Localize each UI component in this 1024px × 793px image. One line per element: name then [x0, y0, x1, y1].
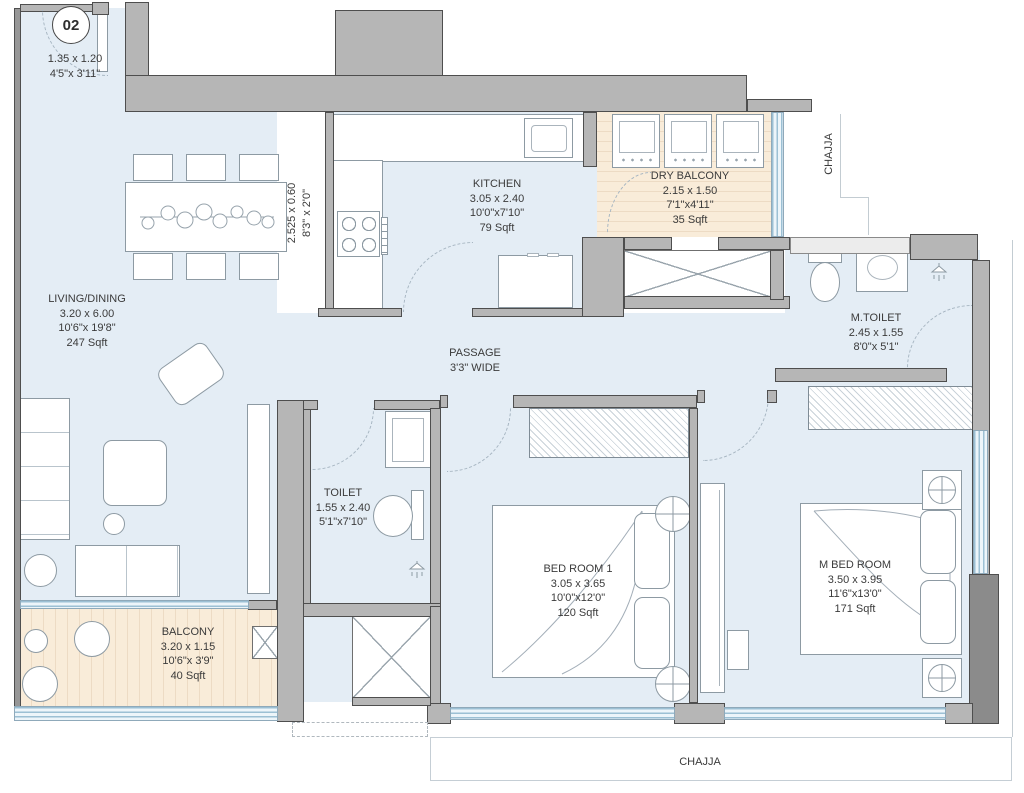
chajja-outline	[840, 114, 841, 198]
washer-unit	[716, 114, 764, 168]
room-name: M.TOILET	[806, 311, 946, 326]
kitchen-label: KITCHEN 3.05 x 2.40 10'0"x7'10" 79 Sqft	[427, 177, 567, 235]
room-dim-ft: 11'6"x13'0"	[785, 587, 925, 602]
wall	[689, 408, 698, 703]
balcony-chair	[22, 666, 58, 702]
pillow	[920, 580, 956, 644]
room-dim-ft: 7'1"x4'11"	[620, 198, 760, 213]
toilet-niche-floor	[303, 612, 352, 702]
balcony-chair	[74, 621, 110, 657]
dining-chair	[239, 253, 279, 280]
room-dim-ft: 10'6"x 19'8"	[17, 321, 157, 336]
wall	[472, 308, 597, 317]
vanity-cabinet	[385, 411, 431, 468]
room-dim-ft: 10'6"x 3'9"	[118, 654, 258, 669]
wall	[945, 703, 973, 724]
chajja-outline	[868, 197, 869, 235]
room-dim-m: 3.20 x 1.15	[118, 640, 258, 655]
room-dim-ft: 10'0"x12'0"	[508, 591, 648, 606]
living-label: LIVING/DINING 3.20 x 6.00 10'6"x 19'8" 2…	[17, 292, 157, 350]
room-name: M BED ROOM	[785, 558, 925, 573]
wall	[318, 308, 402, 317]
wall	[248, 600, 277, 610]
tv-unit	[247, 404, 270, 594]
shower-icon	[928, 262, 950, 286]
mtoilet-label: M.TOILET 2.45 x 1.55 8'0"x 5'1"	[806, 311, 946, 355]
wall	[335, 10, 443, 76]
side-table	[24, 554, 57, 587]
unit-number: 02	[63, 17, 80, 34]
dresser	[700, 483, 725, 693]
chajja-outline	[840, 197, 869, 198]
room-name: LIVING/DINING	[17, 292, 157, 307]
wall	[277, 400, 304, 722]
chajja-right-label: CHAJJA	[822, 124, 836, 184]
balcony-label: BALCONY 3.20 x 1.15 10'6"x 3'9" 40 Sqft	[118, 625, 258, 683]
window	[724, 707, 946, 720]
wall	[513, 395, 697, 408]
entry-dim-ft: 4'5"x 3'11"	[25, 67, 125, 82]
wall	[125, 75, 747, 112]
wardrobe	[529, 408, 689, 458]
wall	[440, 395, 448, 408]
dry-balcony-label: DRY BALCONY 2.15 x 1.50 7'1"x4'11" 35 Sq…	[620, 169, 760, 227]
wall	[674, 703, 725, 724]
wc-icon	[810, 262, 840, 302]
room-area: 35 Sqft	[620, 213, 760, 228]
wall	[583, 112, 597, 167]
room-name: KITCHEN	[427, 177, 567, 192]
mtoilet-ledge	[790, 237, 910, 254]
wall	[910, 234, 978, 260]
room-area: 171 Sqft	[785, 602, 925, 617]
wardrobe	[808, 386, 980, 430]
toilet-label: TOILET 1.55 x 2.40 5'1"x7'10"	[283, 486, 403, 530]
balcony-railing	[14, 706, 278, 721]
coffee-table	[103, 440, 167, 506]
room-dim-m: 3.05 x 2.40	[427, 192, 567, 207]
room-dim-ft: 10'0"x7'10"	[427, 206, 567, 221]
mbedroom-label: M BED ROOM 3.50 x 3.95 11'6"x13'0" 171 S…	[785, 558, 925, 616]
kitchen-sink-icon	[524, 118, 573, 158]
dashed-threshold	[292, 722, 428, 737]
window	[771, 112, 784, 237]
dining-chair	[186, 253, 226, 280]
wall	[718, 237, 790, 250]
chajja-outline	[1012, 240, 1013, 737]
dining-chair	[239, 154, 279, 181]
platform-dims-label: 2.525 x 0.60 8'3" x 2'0"	[285, 167, 315, 259]
room-area: 79 Sqft	[427, 221, 567, 236]
room-dim-ft: 8'0"x 5'1"	[806, 340, 946, 355]
wall	[352, 697, 431, 706]
window	[973, 430, 988, 574]
passage-label: PASSAGE 3'3" WIDE	[415, 346, 535, 375]
room-area: 120 Sqft	[508, 606, 648, 621]
duct-shaft	[352, 616, 431, 699]
washer-unit	[664, 114, 712, 168]
sofa	[18, 398, 70, 540]
island-unit	[498, 255, 573, 308]
chajja-bottom-label: CHAJJA	[650, 755, 750, 770]
bedroom1-label: BED ROOM 1 3.05 x 3.65 10'0"x12'0" 120 S…	[508, 562, 648, 620]
window	[450, 707, 675, 720]
room-dim-m: 3.50 x 3.95	[785, 573, 925, 588]
room-area: 247 Sqft	[17, 336, 157, 351]
wall	[325, 112, 334, 315]
wall	[624, 296, 790, 309]
wall	[747, 99, 812, 112]
balcony-table	[24, 629, 48, 653]
bedside-table	[655, 666, 691, 702]
stove-knobs	[381, 217, 388, 255]
room-dim-m: 2.45 x 1.55	[806, 326, 946, 341]
bench	[727, 630, 749, 670]
dining-chair	[186, 154, 226, 181]
unit-number-badge: 02	[52, 6, 90, 44]
room-dim-m: 1.55 x 2.40	[283, 501, 403, 516]
dining-chair	[133, 253, 173, 280]
sofa	[75, 545, 180, 597]
platform-dim-m: 2.525 x 0.60	[285, 167, 300, 259]
room-name: TOILET	[283, 486, 403, 501]
room-dim-m: 3.05 x 3.65	[508, 577, 648, 592]
side-table	[922, 470, 962, 510]
wall	[427, 703, 451, 724]
wall	[582, 237, 624, 317]
bedside-table	[655, 496, 691, 532]
room-dim-m: 2.15 x 1.50	[620, 184, 760, 199]
room-name: PASSAGE	[415, 346, 535, 361]
wall	[624, 237, 672, 250]
side-table	[922, 658, 962, 698]
room-name: BED ROOM 1	[508, 562, 648, 577]
wall	[969, 574, 999, 724]
wall	[300, 603, 441, 617]
chandelier-icon	[140, 204, 274, 230]
room-name: DRY BALCONY	[620, 169, 760, 184]
room-name: BALCONY	[118, 625, 258, 640]
washer-unit	[612, 114, 660, 168]
wall	[775, 368, 947, 382]
duct-shaft	[624, 250, 772, 298]
room-area: 40 Sqft	[118, 669, 258, 684]
floor-plan: 02 1.35 x 1.20 4'5"x 3'11" LIVING/DINING…	[0, 0, 1024, 793]
stove-icon	[337, 211, 380, 257]
entry-dim-m: 1.35 x 1.20	[25, 52, 125, 67]
room-dim-ft: 5'1"x7'10"	[283, 515, 403, 530]
entry-dims-label: 1.35 x 1.20 4'5"x 3'11"	[25, 52, 125, 81]
room-dim-m: 3.20 x 6.00	[17, 307, 157, 322]
floor-lamp	[103, 513, 125, 535]
wall	[430, 606, 441, 706]
window	[20, 600, 249, 609]
pillow	[920, 510, 956, 574]
wall	[770, 250, 784, 300]
passage-width: 3'3" WIDE	[415, 361, 535, 376]
wall	[430, 408, 441, 608]
shower-icon	[406, 560, 428, 582]
dining-chair	[133, 154, 173, 181]
platform-dim-ft: 8'3" x 2'0"	[300, 167, 315, 259]
